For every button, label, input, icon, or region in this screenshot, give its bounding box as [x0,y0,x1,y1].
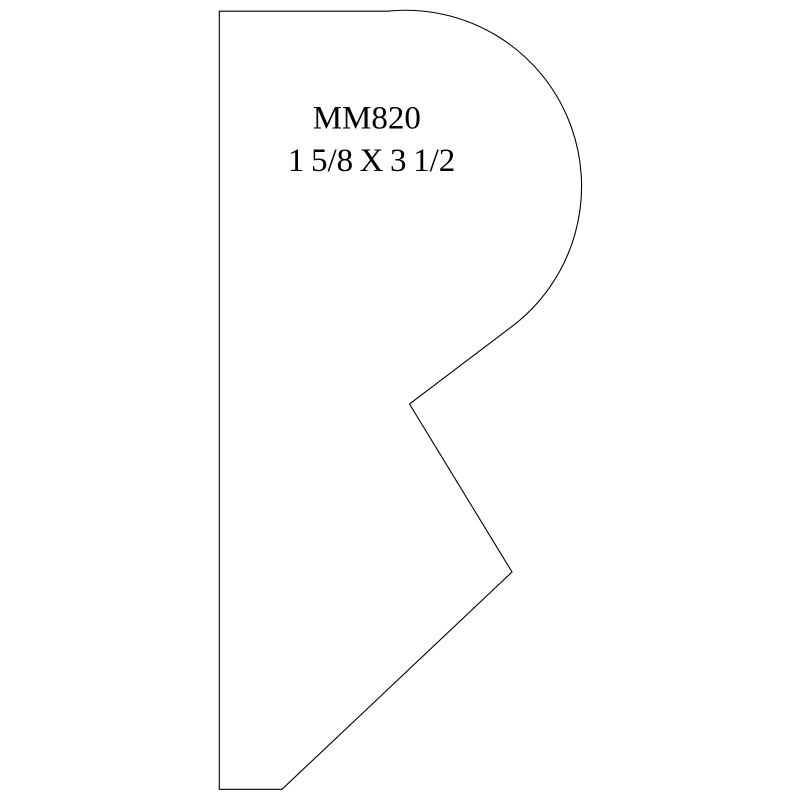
svg-text:MM820: MM820 [313,100,421,136]
svg-text:1 5/8 X 3 1/2: 1 5/8 X 3 1/2 [288,143,455,179]
